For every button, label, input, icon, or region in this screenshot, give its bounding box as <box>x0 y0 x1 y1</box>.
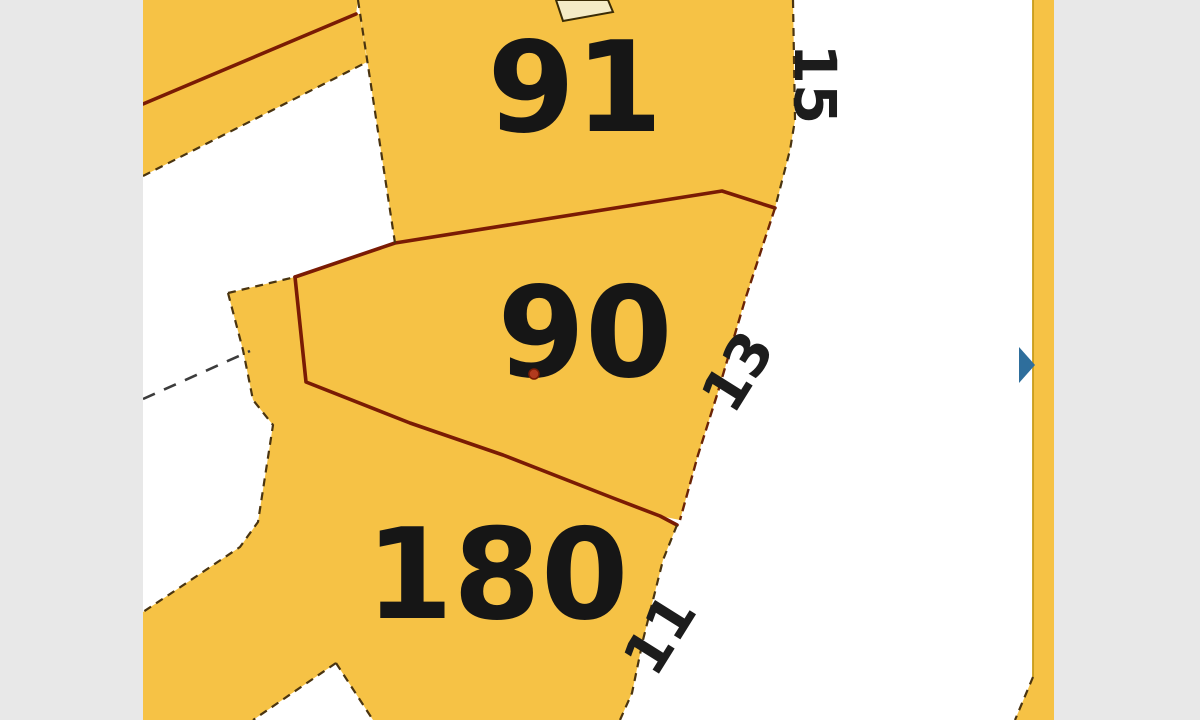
letterbox-right <box>1054 0 1200 720</box>
red-dot-marker[interactable] <box>529 369 539 379</box>
parcel-180-label: 180 <box>365 501 628 648</box>
letterbox-left <box>0 0 143 720</box>
parcel-91-label: 91 <box>487 14 662 161</box>
map-viewport: 91 90 180 15 13 11 <box>0 0 1200 720</box>
cadastral-map[interactable]: 91 90 180 15 13 11 <box>0 0 1200 720</box>
street-number-15: 15 <box>781 44 849 125</box>
parcel-90-label: 90 <box>497 259 672 406</box>
